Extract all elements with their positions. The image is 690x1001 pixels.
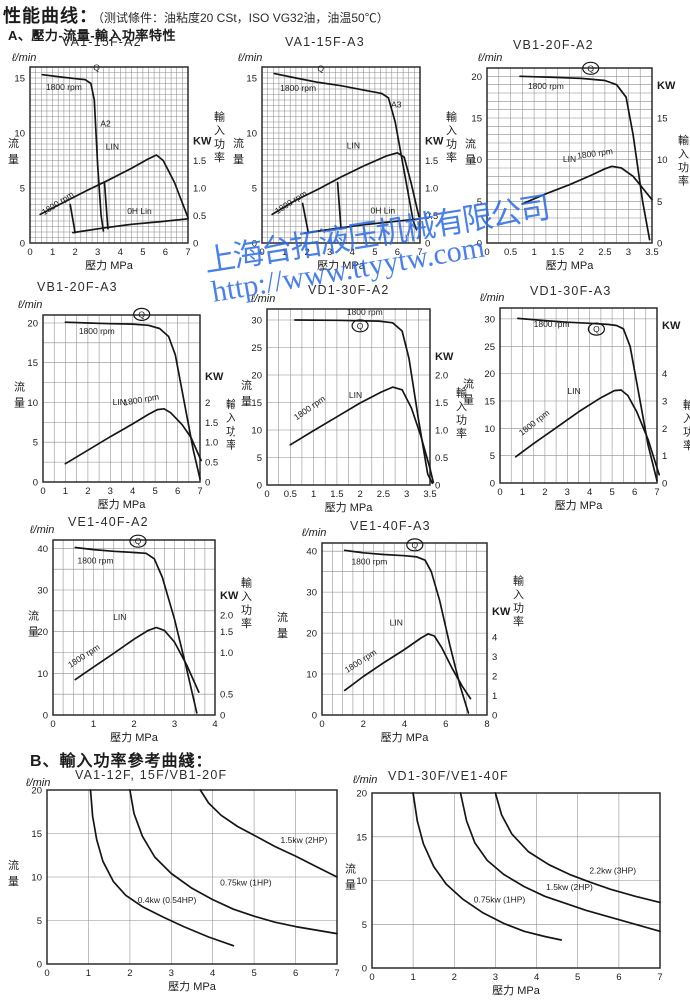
svg-text:0: 0 (264, 489, 269, 500)
svg-text:KW: KW (220, 590, 239, 602)
svg-text:壓力 MPa: 壓力 MPa (110, 731, 159, 744)
svg-text:A2: A2 (100, 118, 111, 128)
svg-text:4: 4 (212, 719, 217, 730)
svg-text:10: 10 (31, 873, 42, 884)
svg-text:流: 流 (241, 378, 252, 392)
svg-text:5: 5 (575, 972, 580, 983)
svg-text:KW: KW (492, 606, 511, 618)
svg-text:5: 5 (490, 451, 495, 462)
svg-text:5: 5 (252, 184, 257, 195)
svg-text:4: 4 (402, 719, 407, 730)
svg-text:7: 7 (654, 487, 659, 498)
svg-text:1.0: 1.0 (220, 648, 233, 659)
chart-canvas-ve1-40f-a3: 02468010203040ℓ/min流量壓力 MPa43210KW輸入功率Q1… (270, 510, 540, 762)
svg-text:壓力 MPa: 壓力 MPa (546, 259, 595, 272)
svg-text:0: 0 (205, 478, 210, 489)
svg-text:0.5: 0.5 (193, 211, 206, 222)
svg-text:3: 3 (172, 719, 177, 730)
page-title: 性能曲线： (3, 6, 98, 26)
svg-text:0.75kw (1HP): 0.75kw (1HP) (220, 878, 272, 888)
svg-text:ℓ/min: ℓ/min (477, 52, 502, 64)
svg-text:1: 1 (63, 486, 68, 497)
svg-text:5: 5 (152, 486, 157, 497)
svg-text:2.0: 2.0 (220, 611, 233, 622)
svg-text:LIN: LIN (349, 390, 362, 400)
svg-text:0.75kw (1HP): 0.75kw (1HP) (474, 894, 526, 904)
svg-text:0.5: 0.5 (435, 453, 448, 464)
svg-text:壓力 MPa: 壓力 MPa (381, 731, 430, 744)
svg-text:10: 10 (484, 424, 495, 435)
svg-text:1800 rpm: 1800 rpm (577, 146, 614, 161)
svg-text:25: 25 (251, 343, 262, 354)
svg-text:20: 20 (251, 371, 262, 382)
svg-text:A3: A3 (391, 100, 402, 110)
svg-text:功: 功 (513, 601, 524, 614)
svg-text:ℓ/min: ℓ/min (17, 299, 42, 311)
svg-text:30: 30 (484, 314, 495, 325)
svg-text:0: 0 (312, 711, 317, 722)
svg-text:15: 15 (14, 74, 25, 85)
svg-text:7: 7 (657, 972, 662, 983)
svg-text:2: 2 (72, 247, 77, 258)
svg-text:流: 流 (345, 862, 356, 876)
svg-text:輸: 輸 (214, 110, 225, 124)
svg-text:入: 入 (678, 148, 689, 160)
svg-text:0: 0 (259, 247, 264, 258)
svg-text:3: 3 (493, 972, 498, 983)
svg-text:流: 流 (277, 610, 288, 624)
svg-text:3: 3 (565, 487, 570, 498)
svg-text:10: 10 (27, 398, 38, 409)
svg-text:1800 rpm: 1800 rpm (280, 83, 316, 93)
chart-b1-input-power-ref: 0123456705101520ℓ/min流量壓力 MPa0.4kw (0.54… (0, 762, 350, 1001)
svg-text:5: 5 (609, 487, 614, 498)
svg-text:5: 5 (140, 247, 145, 258)
svg-text:率: 率 (226, 437, 235, 451)
svg-text:壓力 MPa: 壓力 MPa (85, 259, 134, 272)
svg-text:5: 5 (477, 197, 482, 208)
svg-text:0: 0 (657, 239, 662, 250)
svg-text:率: 率 (678, 173, 689, 187)
svg-text:Q: Q (357, 321, 364, 331)
svg-text:20: 20 (356, 789, 367, 800)
svg-text:2: 2 (361, 719, 366, 730)
test-conditions: （测试條件：油粘度20 CSt，ISO VG32油，油温50℃） (98, 11, 389, 25)
svg-text:ℓ/min: ℓ/min (301, 527, 326, 539)
svg-text:30: 30 (306, 588, 317, 599)
svg-text:量: 量 (465, 154, 476, 167)
svg-text:4: 4 (350, 247, 355, 258)
svg-text:功: 功 (214, 138, 225, 151)
svg-text:6: 6 (395, 247, 400, 258)
svg-text:4: 4 (587, 487, 592, 498)
svg-text:8: 8 (484, 719, 489, 730)
svg-text:15: 15 (657, 114, 668, 125)
svg-text:2.5: 2.5 (598, 247, 611, 258)
svg-text:0: 0 (492, 711, 497, 722)
svg-text:1: 1 (410, 972, 415, 983)
svg-text:10: 10 (37, 669, 48, 680)
svg-text:ℓ/min: ℓ/min (250, 293, 275, 305)
svg-text:1: 1 (86, 968, 91, 979)
svg-text:1800 rpm: 1800 rpm (123, 392, 160, 408)
svg-text:6: 6 (175, 486, 180, 497)
svg-text:7: 7 (185, 247, 190, 258)
svg-text:0.4kw (0.54HP): 0.4kw (0.54HP) (138, 895, 197, 905)
svg-text:量: 量 (28, 626, 39, 639)
svg-text:LIN: LIN (390, 618, 403, 628)
svg-text:1.5: 1.5 (425, 156, 438, 167)
chart-canvas-vb1-20f-a2: 00.511.522.533.505101520ℓ/min流量壓力 MPa151… (455, 30, 690, 282)
svg-text:LIN: LIN (347, 140, 360, 150)
svg-text:1.5: 1.5 (220, 627, 233, 638)
svg-text:量: 量 (233, 153, 244, 166)
svg-text:7: 7 (197, 486, 202, 497)
chart-vd1-30f-a2: 00.511.522.533.5051015202530ℓ/min流量壓力 MP… (235, 278, 470, 523)
svg-text:ℓ/min: ℓ/min (11, 52, 36, 64)
svg-text:2: 2 (205, 398, 210, 409)
svg-text:10: 10 (657, 155, 668, 166)
svg-text:LIN: LIN (113, 612, 126, 622)
svg-text:流: 流 (28, 609, 39, 623)
chart-ve1-40f-a2: 01234010203040ℓ/min流量壓力 MPa2.01.51.00.50… (20, 510, 270, 762)
svg-text:輸: 輸 (683, 397, 690, 411)
svg-text:0: 0 (220, 711, 225, 722)
svg-text:3: 3 (169, 968, 174, 979)
svg-text:入: 入 (683, 413, 690, 425)
svg-text:2: 2 (542, 487, 547, 498)
svg-text:輸: 輸 (241, 576, 252, 590)
svg-text:1: 1 (520, 487, 525, 498)
svg-text:KW: KW (425, 135, 444, 147)
svg-text:30: 30 (37, 586, 48, 597)
svg-text:40: 40 (37, 544, 48, 555)
chart-b2-input-power-ref: 0123456705101520ℓ/min流量壓力 MPa0.75kw (1HP… (340, 762, 690, 1001)
svg-text:率: 率 (683, 438, 690, 452)
svg-text:VA1-15F-A3: VA1-15F-A3 (285, 35, 365, 49)
svg-text:VA1-15F-A2: VA1-15F-A2 (62, 35, 142, 49)
chart-va1-15f-a2: 01234567051015ℓ/min流量壓力 MPa1.51.00.50KW輸… (0, 30, 230, 282)
svg-text:4: 4 (130, 486, 135, 497)
chart-vb1-20f-a2: 00.511.522.533.505101520ℓ/min流量壓力 MPa151… (455, 30, 690, 282)
svg-text:壓力 MPa: 壓力 MPa (492, 984, 541, 997)
svg-text:6: 6 (163, 247, 168, 258)
svg-text:1: 1 (91, 719, 96, 730)
svg-text:2: 2 (492, 672, 497, 683)
svg-text:0.5: 0.5 (504, 247, 517, 258)
svg-text:入: 入 (241, 591, 252, 603)
svg-text:3: 3 (404, 489, 409, 500)
svg-text:2: 2 (131, 719, 136, 730)
svg-text:流: 流 (233, 136, 244, 150)
svg-text:壓力 MPa: 壓力 MPa (317, 259, 366, 272)
svg-text:20: 20 (37, 627, 48, 638)
svg-text:20: 20 (27, 319, 38, 330)
svg-text:7: 7 (417, 247, 422, 258)
svg-text:6: 6 (632, 487, 637, 498)
svg-text:4: 4 (492, 633, 497, 644)
svg-text:15: 15 (471, 114, 482, 125)
svg-text:10: 10 (306, 670, 317, 681)
svg-text:5: 5 (33, 438, 38, 449)
svg-text:20: 20 (306, 629, 317, 640)
svg-text:1.0: 1.0 (205, 438, 218, 449)
svg-text:流: 流 (14, 380, 25, 394)
svg-text:15: 15 (251, 398, 262, 409)
chart-va1-15f-a3: 01234567051015ℓ/min流量壓力 MPa1.51.00.50KW輸… (230, 30, 465, 282)
svg-text:量: 量 (463, 394, 474, 407)
svg-text:率: 率 (241, 616, 252, 630)
svg-text:15: 15 (27, 358, 38, 369)
svg-text:0: 0 (497, 487, 502, 498)
svg-text:1800 rpm: 1800 rpm (347, 307, 383, 317)
svg-text:Q: Q (93, 62, 100, 72)
svg-text:量: 量 (345, 879, 356, 892)
svg-text:0: 0 (44, 968, 49, 979)
svg-text:1800 rpm: 1800 rpm (273, 188, 309, 216)
svg-text:ℓ/min: ℓ/min (479, 292, 504, 304)
svg-text:5: 5 (362, 920, 367, 931)
chart-vd1-30f-a3: 01234567051015202530ℓ/min流量壓力 MPa43210KW… (460, 278, 690, 523)
svg-text:15: 15 (31, 829, 42, 840)
svg-text:KW: KW (205, 371, 224, 383)
svg-text:Q: Q (411, 540, 418, 550)
svg-text:入: 入 (513, 589, 524, 601)
svg-text:1800 rpm: 1800 rpm (292, 393, 327, 422)
svg-text:量: 量 (241, 395, 252, 408)
chart-canvas-vd1-30f-a3: 01234567051015202530ℓ/min流量壓力 MPa43210KW… (460, 278, 690, 523)
svg-text:4: 4 (662, 369, 667, 380)
svg-text:3: 3 (626, 247, 631, 258)
svg-text:1.5: 1.5 (551, 247, 564, 258)
svg-text:功: 功 (241, 604, 252, 617)
svg-text:15: 15 (356, 832, 367, 843)
svg-text:ℓ/min: ℓ/min (29, 524, 54, 536)
svg-text:VB1-20F-A2: VB1-20F-A2 (513, 38, 594, 52)
svg-text:2: 2 (452, 972, 457, 983)
svg-text:0: 0 (484, 247, 489, 258)
svg-text:4: 4 (118, 247, 123, 258)
svg-text:流: 流 (8, 136, 19, 150)
svg-text:1: 1 (282, 247, 287, 258)
svg-text:Q: Q (317, 63, 324, 73)
svg-text:3: 3 (95, 247, 100, 258)
svg-text:0H Lin: 0H Lin (371, 205, 396, 215)
svg-text:2: 2 (662, 424, 667, 435)
svg-text:1: 1 (50, 247, 55, 258)
svg-text:0: 0 (193, 239, 198, 250)
svg-text:5: 5 (20, 184, 25, 195)
svg-text:入: 入 (214, 125, 225, 137)
svg-text:20: 20 (471, 72, 482, 83)
svg-text:量: 量 (277, 627, 288, 640)
svg-text:3: 3 (108, 486, 113, 497)
svg-text:功: 功 (678, 161, 689, 174)
svg-text:0: 0 (362, 964, 367, 975)
svg-text:Q: Q (587, 63, 594, 73)
svg-text:0: 0 (477, 239, 482, 250)
svg-text:5: 5 (37, 916, 42, 927)
svg-text:2: 2 (357, 489, 362, 500)
svg-text:0: 0 (257, 481, 262, 492)
svg-text:1.0: 1.0 (425, 184, 438, 195)
svg-text:1.5: 1.5 (435, 398, 448, 409)
svg-text:壓力 MPa: 壓力 MPa (168, 980, 217, 993)
svg-text:2: 2 (85, 486, 90, 497)
svg-text:1.5kw (2HP): 1.5kw (2HP) (281, 835, 328, 845)
svg-text:ℓ/min: ℓ/min (352, 774, 377, 786)
svg-text:VE1-40F-A3: VE1-40F-A3 (350, 519, 431, 533)
svg-text:ℓ/min: ℓ/min (25, 777, 50, 789)
svg-text:1: 1 (311, 489, 316, 500)
svg-text:0.5: 0.5 (284, 489, 297, 500)
svg-text:0: 0 (435, 481, 440, 492)
svg-text:功: 功 (226, 425, 235, 438)
svg-text:4: 4 (210, 968, 215, 979)
svg-text:0: 0 (37, 960, 42, 971)
chart-canvas-b1: 0123456705101520ℓ/min流量壓力 MPa0.4kw (0.54… (0, 762, 350, 1001)
svg-text:1.5: 1.5 (330, 489, 343, 500)
svg-text:0.5: 0.5 (205, 458, 218, 469)
svg-text:3: 3 (327, 247, 332, 258)
svg-text:2: 2 (579, 247, 584, 258)
svg-text:0H Lin: 0H Lin (127, 206, 152, 216)
svg-text:10: 10 (251, 426, 262, 437)
svg-text:0: 0 (43, 711, 48, 722)
svg-text:VE1-40F-A2: VE1-40F-A2 (68, 515, 149, 529)
svg-text:6: 6 (293, 968, 298, 979)
svg-text:30: 30 (251, 316, 262, 327)
svg-text:2: 2 (127, 968, 132, 979)
svg-text:1.5kw (2HP): 1.5kw (2HP) (546, 882, 593, 892)
svg-text:0: 0 (252, 239, 257, 250)
svg-text:輸: 輸 (226, 397, 235, 411)
svg-text:40: 40 (306, 547, 317, 558)
svg-text:輸: 輸 (513, 573, 524, 587)
svg-text:2.0: 2.0 (435, 371, 448, 382)
svg-text:1.5: 1.5 (205, 418, 218, 429)
svg-text:1800 rpm: 1800 rpm (528, 81, 564, 91)
chart-canvas-vb1-20f-a3: 0123456705101520ℓ/min流量壓力 MPa21.51.00.50… (0, 278, 235, 523)
svg-text:15: 15 (484, 397, 495, 408)
svg-text:流: 流 (8, 858, 19, 872)
svg-text:0: 0 (662, 479, 667, 490)
svg-text:0: 0 (369, 972, 374, 983)
svg-text:1.5: 1.5 (193, 156, 206, 167)
svg-text:3: 3 (662, 397, 667, 408)
svg-text:6: 6 (443, 719, 448, 730)
chart-canvas-b2: 0123456705101520ℓ/min流量壓力 MPa0.75kw (1HP… (340, 762, 690, 1001)
svg-text:0: 0 (490, 479, 495, 490)
svg-text:1: 1 (492, 691, 497, 702)
chart-canvas-va1-15f-a3: 01234567051015ℓ/min流量壓力 MPa1.51.00.50KW輸… (230, 30, 465, 282)
svg-text:率: 率 (513, 614, 524, 628)
svg-text:20: 20 (484, 369, 495, 380)
svg-text:量: 量 (8, 153, 19, 166)
svg-text:1800 rpm: 1800 rpm (79, 326, 115, 336)
svg-text:1800 rpm: 1800 rpm (46, 82, 82, 92)
svg-text:0.5: 0.5 (220, 690, 233, 701)
chart-canvas-va1-15f-a2: 01234567051015ℓ/min流量壓力 MPa1.51.00.50KW輸… (0, 30, 230, 282)
svg-text:0: 0 (425, 239, 430, 250)
svg-text:1800 rpm: 1800 rpm (517, 408, 551, 438)
svg-text:0: 0 (50, 719, 55, 730)
svg-text:0: 0 (319, 719, 324, 730)
svg-text:流: 流 (465, 137, 476, 151)
svg-text:VD1-30F/VE1-40F: VD1-30F/VE1-40F (388, 769, 509, 783)
svg-text:壓力 MPa: 壓力 MPa (555, 499, 604, 512)
svg-text:KW: KW (657, 80, 676, 92)
chart-ve1-40f-a3: 02468010203040ℓ/min流量壓力 MPa43210KW輸入功率Q1… (270, 510, 540, 762)
svg-text:Q: Q (593, 324, 600, 334)
svg-text:1.0: 1.0 (193, 184, 206, 195)
svg-text:VB1-20F-A3: VB1-20F-A3 (37, 280, 118, 294)
svg-text:VD1-30F-A2: VD1-30F-A2 (308, 283, 389, 297)
svg-text:2.5: 2.5 (377, 489, 390, 500)
svg-text:5: 5 (372, 247, 377, 258)
svg-text:LIN: LIN (567, 386, 580, 396)
svg-text:Q: Q (138, 309, 145, 319)
svg-text:10: 10 (356, 876, 367, 887)
svg-text:率: 率 (214, 150, 225, 164)
svg-text:KW: KW (435, 351, 454, 363)
svg-text:0: 0 (27, 247, 32, 258)
chart-canvas-ve1-40f-a2: 01234010203040ℓ/min流量壓力 MPa2.01.51.00.50… (20, 510, 270, 762)
svg-text:5: 5 (657, 197, 662, 208)
svg-text:1: 1 (531, 247, 536, 258)
svg-text:4: 4 (534, 972, 539, 983)
svg-text:0: 0 (33, 478, 38, 489)
svg-text:2.2kw (3HP): 2.2kw (3HP) (589, 866, 636, 876)
svg-text:2: 2 (304, 247, 309, 258)
svg-text:LIN: LIN (106, 142, 119, 152)
svg-text:5: 5 (257, 453, 262, 464)
svg-text:功: 功 (683, 425, 690, 438)
svg-text:0: 0 (40, 486, 45, 497)
svg-text:6: 6 (616, 972, 621, 983)
chart-canvas-vd1-30f-a2: 00.511.522.533.5051015202530ℓ/min流量壓力 MP… (235, 278, 470, 523)
svg-text:流: 流 (463, 377, 474, 391)
chart-vb1-20f-a3: 0123456705101520ℓ/min流量壓力 MPa21.51.00.50… (0, 278, 235, 523)
svg-text:5: 5 (251, 968, 256, 979)
svg-text:0.5: 0.5 (425, 211, 438, 222)
svg-text:1800 rpm: 1800 rpm (534, 319, 570, 329)
svg-text:ℓ/min: ℓ/min (237, 52, 262, 64)
svg-text:量: 量 (14, 397, 25, 410)
svg-text:VD1-30F-A3: VD1-30F-A3 (530, 284, 611, 298)
svg-text:3: 3 (492, 652, 497, 663)
svg-text:1.0: 1.0 (435, 426, 448, 437)
svg-text:10: 10 (246, 129, 257, 140)
svg-text:0: 0 (20, 239, 25, 250)
svg-text:KW: KW (193, 135, 212, 147)
svg-text:KW: KW (662, 320, 681, 332)
performance-curves-page: { "page": { "title": "性能曲线：", "subtitle"… (0, 0, 690, 1001)
svg-text:1800 rpm: 1800 rpm (78, 555, 114, 565)
svg-text:輸: 輸 (678, 133, 689, 147)
svg-text:LIN: LIN (563, 154, 576, 164)
svg-text:15: 15 (246, 74, 257, 85)
svg-text:VA1-12F, 15F/VB1-20F: VA1-12F, 15F/VB1-20F (75, 768, 227, 782)
svg-text:25: 25 (484, 342, 495, 353)
svg-text:1: 1 (662, 451, 667, 462)
svg-text:入: 入 (226, 412, 235, 424)
svg-text:量: 量 (8, 875, 19, 888)
svg-text:Q: Q (135, 536, 142, 546)
svg-text:1800 rpm: 1800 rpm (351, 557, 387, 567)
svg-text:7: 7 (334, 968, 339, 979)
